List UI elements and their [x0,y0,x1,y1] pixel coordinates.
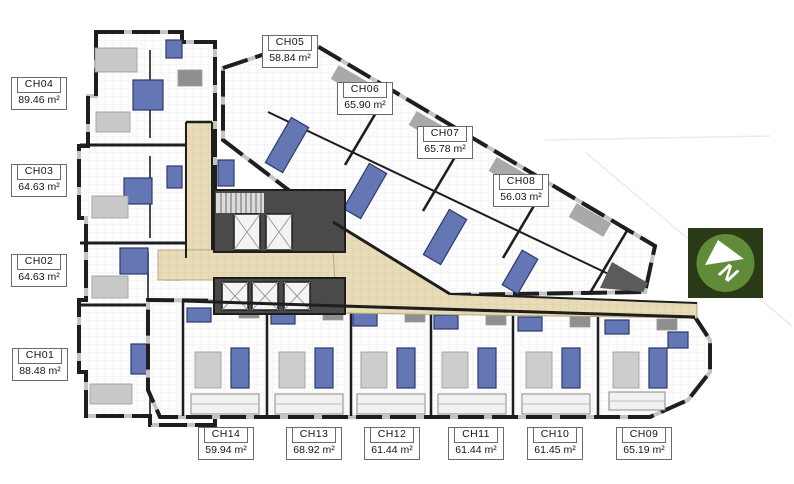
unit-id: CH05 [268,36,312,51]
unit-area: 58.84 m² [263,51,317,67]
unit-area: 68.92 m² [287,443,341,459]
unit-id: CH10 [533,428,577,443]
core [214,190,345,314]
unit-label-ch10: CH10 61.45 m² [527,427,583,460]
unit-id: CH06 [343,83,387,98]
north-compass-icon: N [688,228,763,298]
north-arrow: N [688,228,763,298]
unit-label-ch12: CH12 61.44 m² [364,427,420,460]
unit-id: CH03 [17,165,61,180]
unit-id: CH01 [18,349,62,364]
unit-id: CH13 [292,428,336,443]
unit-label-ch07: CH07 65.78 m² [417,126,473,159]
unit-area: 65.90 m² [338,98,392,114]
unit-id: CH02 [17,255,61,270]
unit-id: CH08 [499,175,543,190]
unit-area: 61.44 m² [449,443,503,459]
unit-area: 64.63 m² [12,180,66,196]
unit-label-ch03: CH03 64.63 m² [11,164,67,197]
unit-label-ch09: CH09 65.19 m² [616,427,672,460]
bottom-wing [148,300,710,417]
unit-area: 89.46 m² [12,93,66,109]
unit-label-ch05: CH05 58.84 m² [262,35,318,68]
unit-label-ch08: CH08 56.03 m² [493,174,549,207]
unit-area: 65.78 m² [418,142,472,158]
unit-id: CH07 [423,127,467,142]
unit-label-ch04: CH04 89.46 m² [11,77,67,110]
floor-plan-page: CH04 89.46 m² CH03 64.63 m² CH02 64.63 m… [0,0,794,484]
unit-label-ch06: CH06 65.90 m² [337,82,393,115]
unit-label-ch02: CH02 64.63 m² [11,254,67,287]
unit-id: CH11 [454,428,498,443]
unit-area: 56.03 m² [494,190,548,206]
unit-id: CH12 [370,428,414,443]
unit-area: 64.63 m² [12,270,66,286]
unit-label-ch01: CH01 88.48 m² [12,348,68,381]
unit-area: 65.19 m² [617,443,671,459]
stairs [216,193,264,213]
unit-area: 88.48 m² [13,364,67,380]
unit-id: CH04 [17,78,61,93]
unit-id: CH14 [204,428,248,443]
unit-area: 61.44 m² [365,443,419,459]
unit-area: 59.94 m² [199,443,253,459]
unit-label-ch11: CH11 61.44 m² [448,427,504,460]
floor-plan-drawing [0,0,794,484]
corridor-vertical [186,122,212,258]
unit-label-ch13: CH13 68.92 m² [286,427,342,460]
unit-area: 61.45 m² [528,443,582,459]
unit-label-ch14: CH14 59.94 m² [198,427,254,460]
unit-id: CH09 [622,428,666,443]
